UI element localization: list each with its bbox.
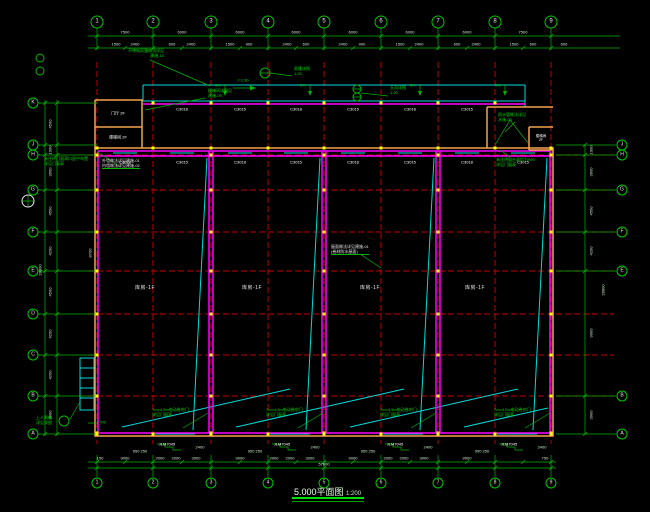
dim-wall-height: 8700 — [89, 249, 94, 258]
grid-bubble-top: 8 — [489, 16, 502, 29]
dim-left: 4200 — [49, 247, 54, 256]
dim-top-minor: 1500 — [510, 43, 519, 48]
dim-top-major: 7500 — [519, 31, 528, 36]
slope-mark: 5% — [495, 84, 501, 89]
grid-bubble-left: C — [28, 350, 39, 361]
dim-top-major: 6000 — [292, 31, 301, 36]
grid-bubble-top: 7 — [432, 16, 445, 29]
dim-left: 4500 — [49, 207, 54, 216]
grid-bubble-left: G — [28, 185, 39, 196]
dim-door-width-a: 950 250 — [475, 450, 489, 455]
grid-bubble-bottom: 2 — [148, 478, 159, 489]
drawing-title-text: 5.000平面图 — [294, 487, 344, 497]
dim-top-major: 6000 — [463, 31, 472, 36]
dim-bottom: 2000 — [172, 457, 181, 462]
dim-door-width-b: 2400 — [424, 446, 433, 451]
dim-right: 1000 — [590, 146, 595, 155]
dim-top-minor: 2400 — [415, 43, 424, 48]
dim-bottom: 2000 — [384, 457, 393, 462]
grid-bubble-top: 1 — [91, 16, 104, 29]
roller-door-tag: JLM7045 — [274, 443, 290, 448]
grid-bubble-bottom: 7 — [433, 478, 444, 489]
dim-top-minor: 1500 — [226, 43, 235, 48]
title-underline-thin — [292, 501, 364, 502]
dim-bottom: 3000 — [420, 457, 429, 462]
dim-top-minor: 600 — [454, 43, 461, 48]
dim-right-total: 28800 — [602, 284, 607, 295]
dim-bottom-total: 57600 — [318, 463, 329, 468]
dim-left: 4500 — [49, 288, 54, 297]
grid-bubble-left: K — [28, 98, 39, 109]
dim-right: 3900 — [590, 411, 595, 420]
window-tag: C3018 — [461, 161, 473, 166]
dim-top-minor: 2400 — [339, 43, 348, 48]
dim-bottom: 2000 — [400, 457, 409, 462]
title-underline-thick — [292, 497, 364, 499]
grid-bubble-right: A — [617, 429, 628, 440]
dim-ladder-level: 1.700 — [96, 421, 106, 426]
dim-top-major: 6000 — [406, 31, 415, 36]
grid-bubble-right: G — [617, 185, 628, 196]
cad-drawing-canvas: 112233445566778899KJHGFEDCBAJHGFEBA75006… — [0, 0, 650, 512]
grid-bubble-right: F — [617, 227, 628, 238]
dim-top-minor: 1500 — [112, 43, 121, 48]
grid-bubble-bottom: 6 — [376, 478, 387, 489]
dim-top-minor: 1500 — [396, 43, 405, 48]
grid-bubble-bottom: 3 — [206, 478, 217, 489]
window-tag: C3015 — [404, 161, 416, 166]
grid-bubble-bottom: 8 — [490, 478, 501, 489]
roller-door-tag: JLM7045 — [501, 443, 517, 448]
dim-top-right: 600 — [561, 43, 568, 48]
slope-mark: 5% — [410, 84, 416, 89]
roller-door-note-3: 7m×4.5m电动卷帘门 详见门窗表 — [380, 407, 417, 417]
dim-left: 4200 — [49, 330, 54, 339]
dim-door-width-a: 950 250 — [133, 450, 147, 455]
dim-right: 4200 — [590, 247, 595, 256]
window-tag-upper: C3018 — [176, 108, 188, 113]
room-label: 库房-1F — [135, 286, 155, 292]
grid-bubble-right: E — [617, 266, 628, 277]
dim-bottom: 150 — [97, 457, 104, 462]
grid-bubble-top: 3 — [205, 16, 218, 29]
dim-top-minor: 900 — [246, 43, 253, 48]
dim-bottom: 9000 — [349, 457, 358, 462]
dim-top-minor: 600 — [530, 43, 537, 48]
dim-left: 4500 — [49, 120, 54, 129]
dim-right: 4500 — [590, 207, 595, 216]
grid-bubble-top: 4 — [262, 16, 275, 29]
dim-door-width-a: 950 250 — [248, 450, 262, 455]
dim-bottom: 9000 — [463, 457, 472, 462]
grid-bubble-bottom: 4 — [263, 478, 274, 489]
roller-door-tag: JLM7045 — [387, 443, 403, 448]
room-label: 库房-1F — [465, 286, 485, 292]
grid-bubble-top: 5 — [318, 16, 331, 29]
ladder-note: 上人爬梯 详见详图 — [36, 415, 52, 425]
dim-bottom: 9000 — [121, 457, 130, 462]
dim-left-total: 28800 — [39, 264, 44, 275]
roller-door-note-2: 7m×4.5m电动卷帘门 详见门窗表 — [266, 407, 303, 417]
stair-note: 楼梯间详图见 建施-09 — [208, 88, 232, 98]
dim-door-width-b: 2400 — [538, 446, 547, 451]
window-tag-upper: C3015 — [234, 108, 246, 113]
dim-right: 9000 — [590, 329, 595, 338]
dim-door-width-a: 950 250 — [361, 450, 375, 455]
roof-note: 屋面做法详见建施-01 (卷材防水屋面) — [331, 244, 369, 255]
sill-note: 未注明窗台高均为900 详见门窗表 — [496, 157, 535, 167]
dim-top-major: 7500 — [121, 31, 130, 36]
dim-door-width-b: 2400 — [196, 446, 205, 451]
rain-note: 雨水管做法详见 水施-05 — [498, 112, 526, 122]
grid-bubble-bottom: 9 — [546, 478, 557, 489]
grid-bubble-left: F — [28, 227, 39, 238]
dim-top-minor: 2400 — [131, 43, 140, 48]
gutter-detail-callout-text: 天沟详图 1:20 — [390, 85, 406, 95]
annex-room-label-right: 楼梯间 2F — [536, 134, 547, 142]
roller-door-note-1: 7m×4.5m电动卷帘门 详见门窗表 — [152, 407, 189, 417]
dim-right: 3600 — [590, 168, 595, 177]
grid-bubble-top: 6 — [375, 16, 388, 29]
dim-top-major: 6000 — [178, 31, 187, 36]
dim-bottom: 3000 — [306, 457, 315, 462]
grid-bubble-right: H — [617, 150, 628, 161]
grid-bubble-right: B — [617, 391, 628, 402]
canopy-note: 不锈钢雨篷做法详见 建施-10 — [128, 48, 164, 58]
dim-top-minor: 900 — [359, 43, 366, 48]
grid-bubble-left: H — [28, 150, 39, 161]
dim-top-major: 6000 — [236, 31, 245, 36]
window-tag-upper: C3015 — [347, 108, 359, 113]
dim-top-minor: 600 — [169, 43, 176, 48]
roller-door-tag: JLM7045 — [159, 443, 175, 448]
wall-note: 外墙做法详见建施-01 内墙做法详见建施-02 — [102, 158, 140, 169]
plan-geometry — [0, 0, 650, 512]
dim-left: 3600 — [49, 168, 54, 177]
grid-bubble-top: 9 — [545, 16, 558, 29]
window-tag-upper: C3015 — [461, 108, 473, 113]
dim-left: 1000 — [49, 146, 54, 155]
grid-bubble-left: D — [28, 309, 39, 320]
dim-top-minor: 2400 — [472, 43, 481, 48]
annex-room-label-upper: 门厅 2F — [111, 112, 125, 117]
dim-bottom: 3000 — [192, 457, 201, 462]
room-label: 库房-1F — [360, 286, 380, 292]
dim-top-major: 6000 — [349, 31, 358, 36]
grid-bubble-top: 2 — [147, 16, 160, 29]
dim-bottom: 9000 — [236, 457, 245, 462]
dim-top-minor: 2400 — [283, 43, 292, 48]
grid-bubble-left: B — [28, 391, 39, 402]
canopy-detail-callout-text: 雨篷详图 1:20 — [294, 66, 310, 76]
opening-note: 未注明门窗洞口居中布置 详见门窗表 — [44, 156, 88, 166]
dim-bottom: 750 — [542, 457, 549, 462]
slope-mark: 5% — [300, 84, 306, 89]
window-tag: C3018 — [347, 161, 359, 166]
ramp-slope-label: i=1:30 — [237, 79, 248, 84]
window-tag-upper: C3018 — [290, 108, 302, 113]
annex-room-label-lower: 楼梯间 2F — [109, 136, 127, 141]
dim-door-width-b: 2400 — [311, 446, 320, 451]
room-label: 库房-1F — [242, 286, 262, 292]
window-tag: C3015 — [176, 161, 188, 166]
roller-door-note-4: 7m×4.5m电动卷帘门 详见门窗表 — [494, 407, 531, 417]
dim-bottom: 2000 — [286, 457, 295, 462]
window-tag-upper: C3018 — [404, 108, 416, 113]
dim-bottom: 2000 — [156, 457, 165, 462]
dim-top-minor: 600 — [303, 43, 310, 48]
grid-bubble-left: A — [28, 429, 39, 440]
window-tag: C3015 — [290, 161, 302, 166]
dim-left: 4200 — [49, 371, 54, 380]
dim-top-minor: 2400 — [187, 43, 196, 48]
dim-bottom: 2000 — [270, 457, 279, 462]
window-tag: C3018 — [234, 161, 246, 166]
grid-bubble-bottom: 1 — [92, 478, 103, 489]
